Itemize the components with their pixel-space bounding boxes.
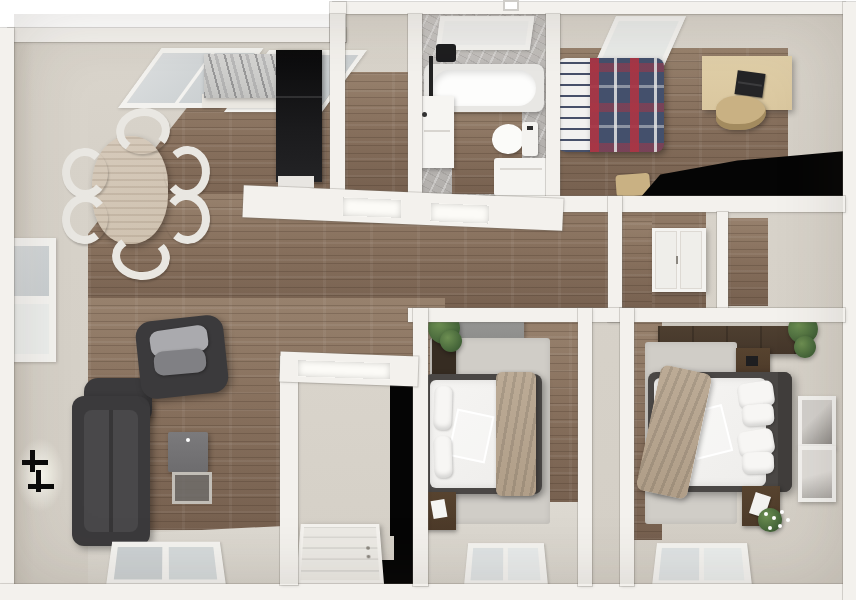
refrigerator-door-line <box>276 96 322 98</box>
toilet-flush-button <box>527 126 533 130</box>
wall-north-west <box>8 28 346 42</box>
sofa-seat-cushions <box>84 410 138 532</box>
ceiling-light-panel <box>298 360 391 379</box>
cabinet-door-left <box>655 231 677 289</box>
wall-sconce-icon <box>22 460 48 465</box>
hall-alcove2-floor <box>728 218 768 306</box>
wall-entry-west <box>280 356 298 585</box>
wall-sconce-icon <box>28 484 54 489</box>
bedroom2-window <box>464 543 548 586</box>
ceiling-light-panel <box>343 197 402 217</box>
bedroom3-pillow <box>741 403 774 427</box>
roof-notch <box>503 0 519 11</box>
laptop-hinge <box>738 81 762 86</box>
toilet-tank <box>522 122 538 156</box>
side-table-top <box>168 432 208 472</box>
refrigerator <box>276 50 322 182</box>
wall-storage-bath <box>408 14 422 198</box>
wall-west <box>0 28 14 600</box>
bedroom1-bed-pillow-striped <box>556 58 592 152</box>
washer-cabinet-line <box>500 168 542 170</box>
sofa <box>72 396 150 546</box>
bedroom3-pillow <box>742 451 775 474</box>
cabinet-handle <box>676 256 678 264</box>
window-pane <box>169 547 217 579</box>
ceiling-light-panel <box>430 203 489 223</box>
side-table-knob <box>186 438 190 442</box>
laptop <box>734 70 765 98</box>
wall-bedroom2-west <box>413 308 428 586</box>
bedroom2-pillow <box>433 386 453 431</box>
door-handle <box>367 555 371 558</box>
cabinet-door-right <box>680 231 702 289</box>
entry-wall-band-lit <box>280 352 419 387</box>
bedroom3-flower-dots <box>764 512 768 516</box>
living-window-south <box>106 542 226 586</box>
shower-head-icon <box>436 44 456 62</box>
wall-east <box>843 2 856 600</box>
floorplan-render <box>0 0 856 600</box>
wall-bedroom3-west <box>620 308 634 586</box>
window-pane <box>704 548 745 581</box>
side-table-legs <box>172 472 212 504</box>
wall-hall-divider <box>608 196 622 322</box>
wall-north-east <box>333 2 845 14</box>
washer-cabinet <box>494 158 548 196</box>
wall-kitchen-storage <box>330 14 345 198</box>
window-pane <box>659 548 700 581</box>
armchair-cushion-dark <box>153 348 207 376</box>
wall-art-2 <box>798 446 836 502</box>
bedroom3-flowers-icon <box>758 508 782 532</box>
storage-room-floor <box>345 72 408 194</box>
window-pane <box>9 304 49 354</box>
window-pane <box>114 547 163 579</box>
wall-alcove-divider <box>717 212 728 310</box>
window-pane <box>470 548 503 581</box>
bedroom3-plant-icon <box>794 336 816 358</box>
front-door <box>296 524 384 584</box>
bedroom2-plant-icon <box>440 330 462 352</box>
bedroom2-throw-blanket <box>496 372 536 496</box>
nightstand-item <box>746 356 758 366</box>
hall-alcove1-floor <box>622 218 652 310</box>
bedroom3-window <box>652 543 752 586</box>
entry-doorway-shadow <box>390 380 414 536</box>
door-handle <box>366 546 370 549</box>
bedroom2-pillow <box>433 436 452 479</box>
bedroom1-bed-plaid-duvet <box>590 58 664 152</box>
wall-art-1 <box>798 396 836 448</box>
bedroom2-nightstand <box>424 492 456 530</box>
wall-bedroom2-east <box>578 308 592 586</box>
vanity-faucet <box>422 112 427 117</box>
wall-bath-bedroom1 <box>546 14 560 212</box>
window-pane <box>9 246 49 296</box>
nightstand-paper <box>431 499 448 519</box>
wall-south <box>0 584 856 600</box>
window-pane <box>508 548 541 581</box>
hall-wall-cabinet <box>652 228 706 292</box>
kitchen-counter-marble <box>204 54 278 98</box>
bathroom-vanity <box>420 96 454 168</box>
vanity-drawer-line <box>424 130 450 132</box>
bedroom3-headboard <box>778 372 792 492</box>
